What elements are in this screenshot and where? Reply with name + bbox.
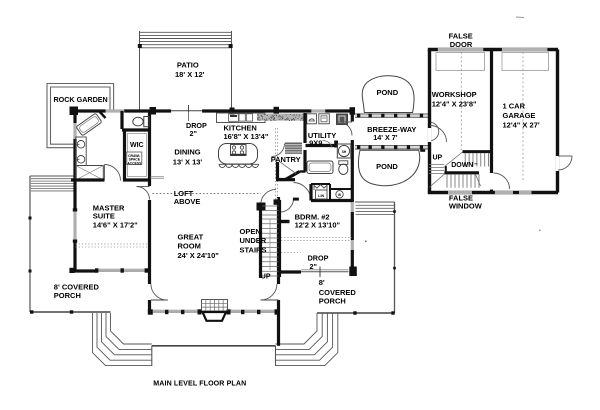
svg-text:UP: UP [261, 273, 271, 280]
svg-text:18' X 12': 18' X 12' [175, 70, 205, 79]
svg-text:UNDER: UNDER [240, 236, 267, 245]
svg-text:PORCH: PORCH [319, 297, 346, 306]
svg-text:12'4" X 23'8": 12'4" X 23'8" [432, 100, 477, 109]
svg-text:WINDOW: WINDOW [449, 202, 483, 211]
svg-text:24' X 24'10": 24' X 24'10" [178, 251, 220, 260]
svg-text:DINING: DINING [174, 148, 200, 157]
svg-text:PANTRY: PANTRY [271, 155, 301, 164]
svg-text:LIN: LIN [318, 194, 324, 198]
svg-text:9X9: 9X9 [309, 138, 322, 147]
svg-text:ABOVE: ABOVE [174, 197, 201, 206]
svg-text:STAIRS: STAIRS [240, 246, 267, 255]
svg-text:W: W [338, 193, 341, 197]
svg-text:ROCK GARDEN: ROCK GARDEN [53, 95, 107, 104]
svg-text:POND: POND [376, 88, 398, 97]
svg-text:WORKSHOP: WORKSHOP [432, 90, 477, 99]
svg-text:DOOR: DOOR [450, 40, 473, 49]
svg-text:12'4" X 27': 12'4" X 27' [503, 121, 540, 130]
svg-text:PORCH: PORCH [54, 291, 81, 300]
svg-text:8': 8' [319, 278, 325, 287]
svg-text:OPEN: OPEN [240, 227, 261, 236]
svg-text:WIC: WIC [130, 142, 144, 149]
svg-text:PATIO: PATIO [177, 61, 199, 70]
svg-text:DOWN: DOWN [451, 162, 473, 169]
svg-text:16'8" X 13'4": 16'8" X 13'4" [224, 132, 269, 141]
svg-text:GARAGE: GARAGE [503, 111, 536, 120]
svg-text:MAIN LEVEL FLOOR PLAN: MAIN LEVEL FLOOR PLAN [153, 380, 246, 388]
svg-text:14' X 7': 14' X 7' [373, 133, 397, 142]
svg-text:ACCESS: ACCESS [127, 161, 142, 165]
svg-text:12'2 X 13'10": 12'2 X 13'10" [295, 220, 341, 229]
svg-text:2": 2" [190, 129, 197, 138]
svg-text:SH: SH [342, 150, 347, 154]
svg-text:1 CAR: 1 CAR [503, 102, 526, 111]
svg-text:POND: POND [376, 162, 398, 171]
svg-text:GREAT: GREAT [178, 233, 204, 242]
svg-text:SUITE: SUITE [93, 212, 115, 221]
svg-text:COVERED: COVERED [319, 288, 357, 297]
svg-text:14'6" X 17'2": 14'6" X 17'2" [93, 220, 138, 229]
svg-text:UP: UP [433, 154, 443, 161]
svg-text:2": 2" [310, 262, 317, 271]
svg-text:ROOM: ROOM [178, 242, 201, 251]
svg-text:13' X 13': 13' X 13' [173, 158, 203, 167]
